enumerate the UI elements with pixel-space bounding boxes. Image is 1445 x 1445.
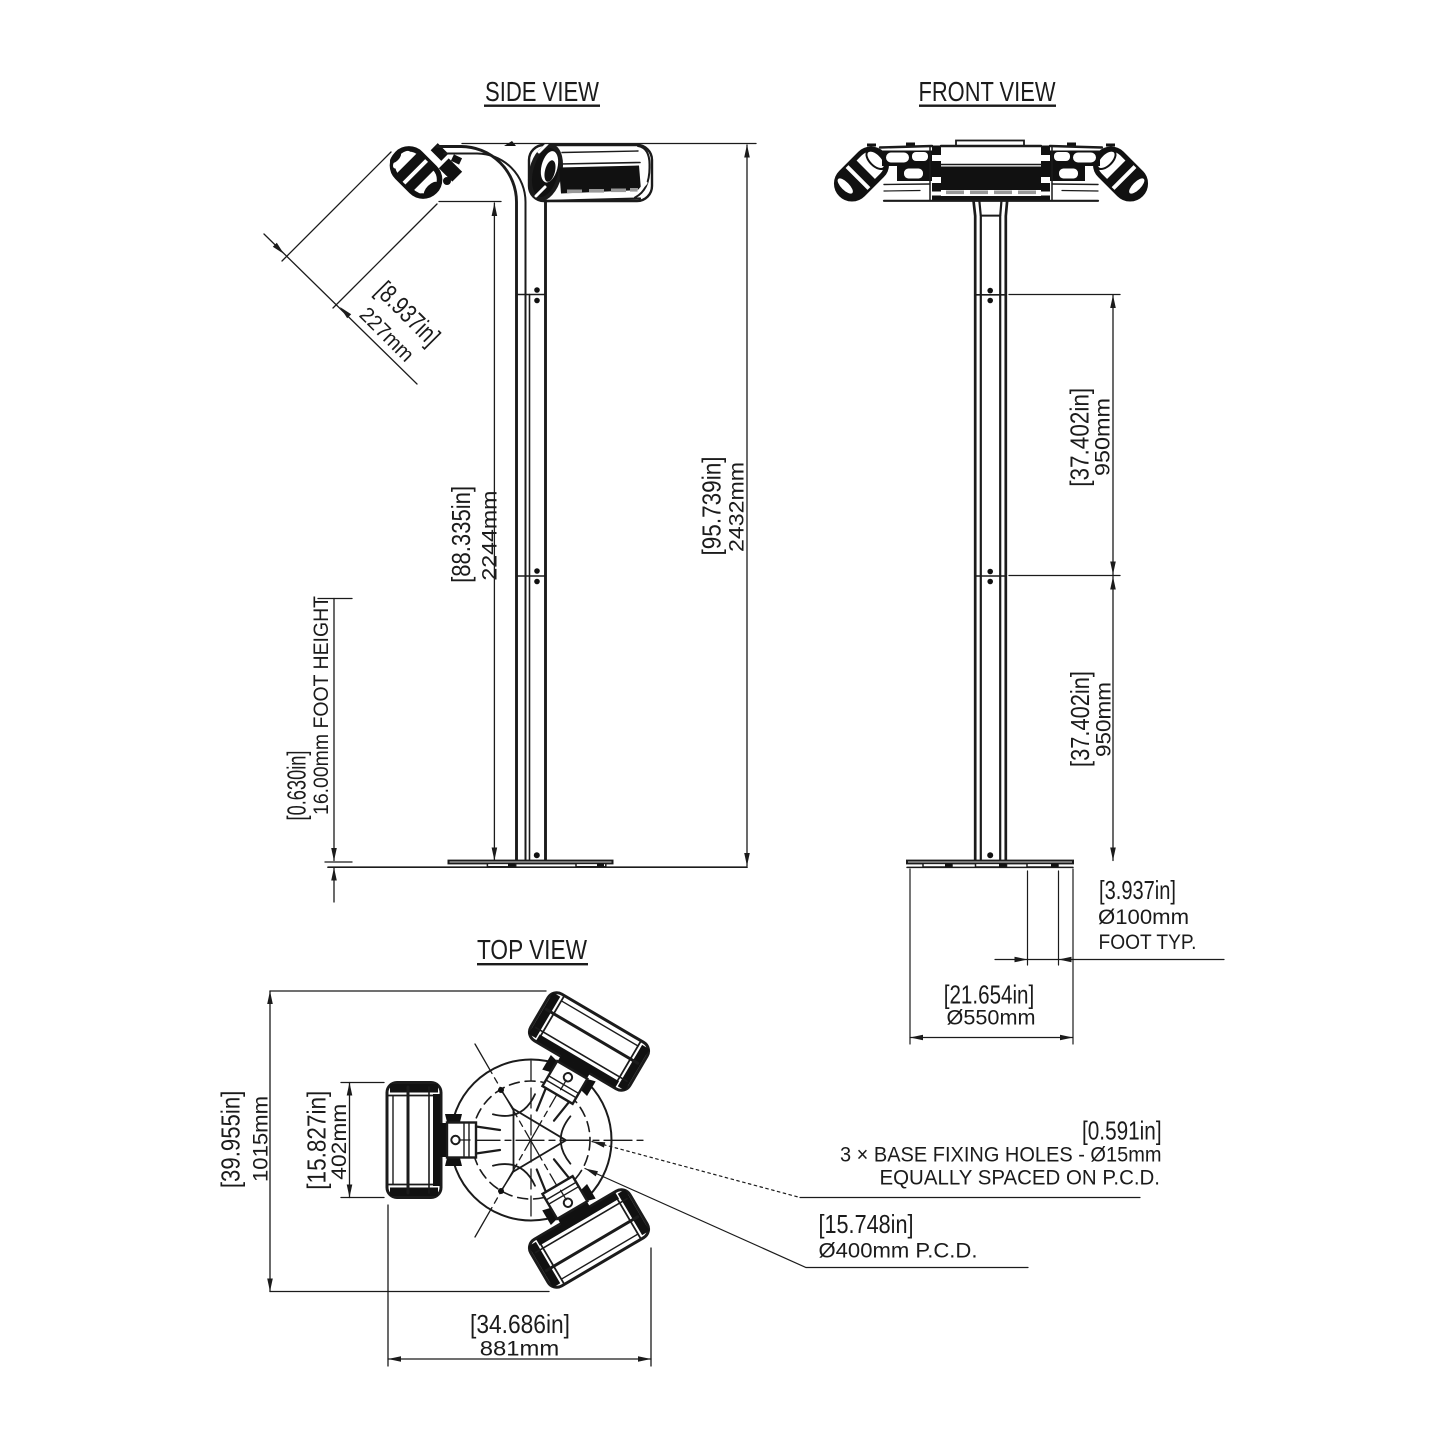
svg-text:950mm: 950mm [1092,398,1115,476]
svg-text:EQUALLY SPACED ON P.C.D.: EQUALLY SPACED ON P.C.D. [880,1167,1161,1190]
svg-text:[21.654in]: [21.654in] [944,980,1035,1010]
svg-text:[39.955in]: [39.955in] [216,1091,246,1189]
svg-text:[15.827in]: [15.827in] [302,1091,332,1190]
svg-text:[0.591in]: [0.591in] [1082,1116,1162,1146]
svg-text:2244mm: 2244mm [479,491,502,581]
svg-text:2432mm: 2432mm [726,462,749,552]
svg-text:[34.686in]: [34.686in] [470,1309,570,1339]
svg-text:950mm: 950mm [1093,682,1116,757]
svg-text:[15.748in]: [15.748in] [819,1209,914,1239]
svg-text:[3.937in]: [3.937in] [1099,875,1176,905]
svg-text:TOP VIEW: TOP VIEW [477,934,587,965]
svg-text:[37.402in]: [37.402in] [1065,671,1095,767]
svg-text:402mm: 402mm [328,1104,351,1180]
svg-text:3 × BASE FIXING HOLES - Ø15mm: 3 × BASE FIXING HOLES - Ø15mm [840,1144,1162,1167]
svg-text:Ø400mm P.C.D.: Ø400mm P.C.D. [819,1240,978,1263]
svg-text:1015mm: 1015mm [250,1096,273,1182]
svg-text:SIDE VIEW: SIDE VIEW [485,76,599,107]
svg-text:Ø550mm: Ø550mm [947,1007,1036,1030]
svg-text:[37.402in]: [37.402in] [1065,388,1095,487]
svg-text:[0.630in]: [0.630in] [282,751,312,821]
svg-text:881mm: 881mm [480,1338,560,1361]
svg-text:Ø100mm: Ø100mm [1098,906,1189,929]
svg-text:16.00mm FOOT HEIGHT: 16.00mm FOOT HEIGHT [310,596,333,815]
svg-text:FRONT VIEW: FRONT VIEW [919,76,1056,107]
svg-text:[88.335in]: [88.335in] [446,486,476,583]
svg-text:FOOT TYP.: FOOT TYP. [1099,931,1197,954]
svg-text:[95.739in]: [95.739in] [697,457,727,556]
